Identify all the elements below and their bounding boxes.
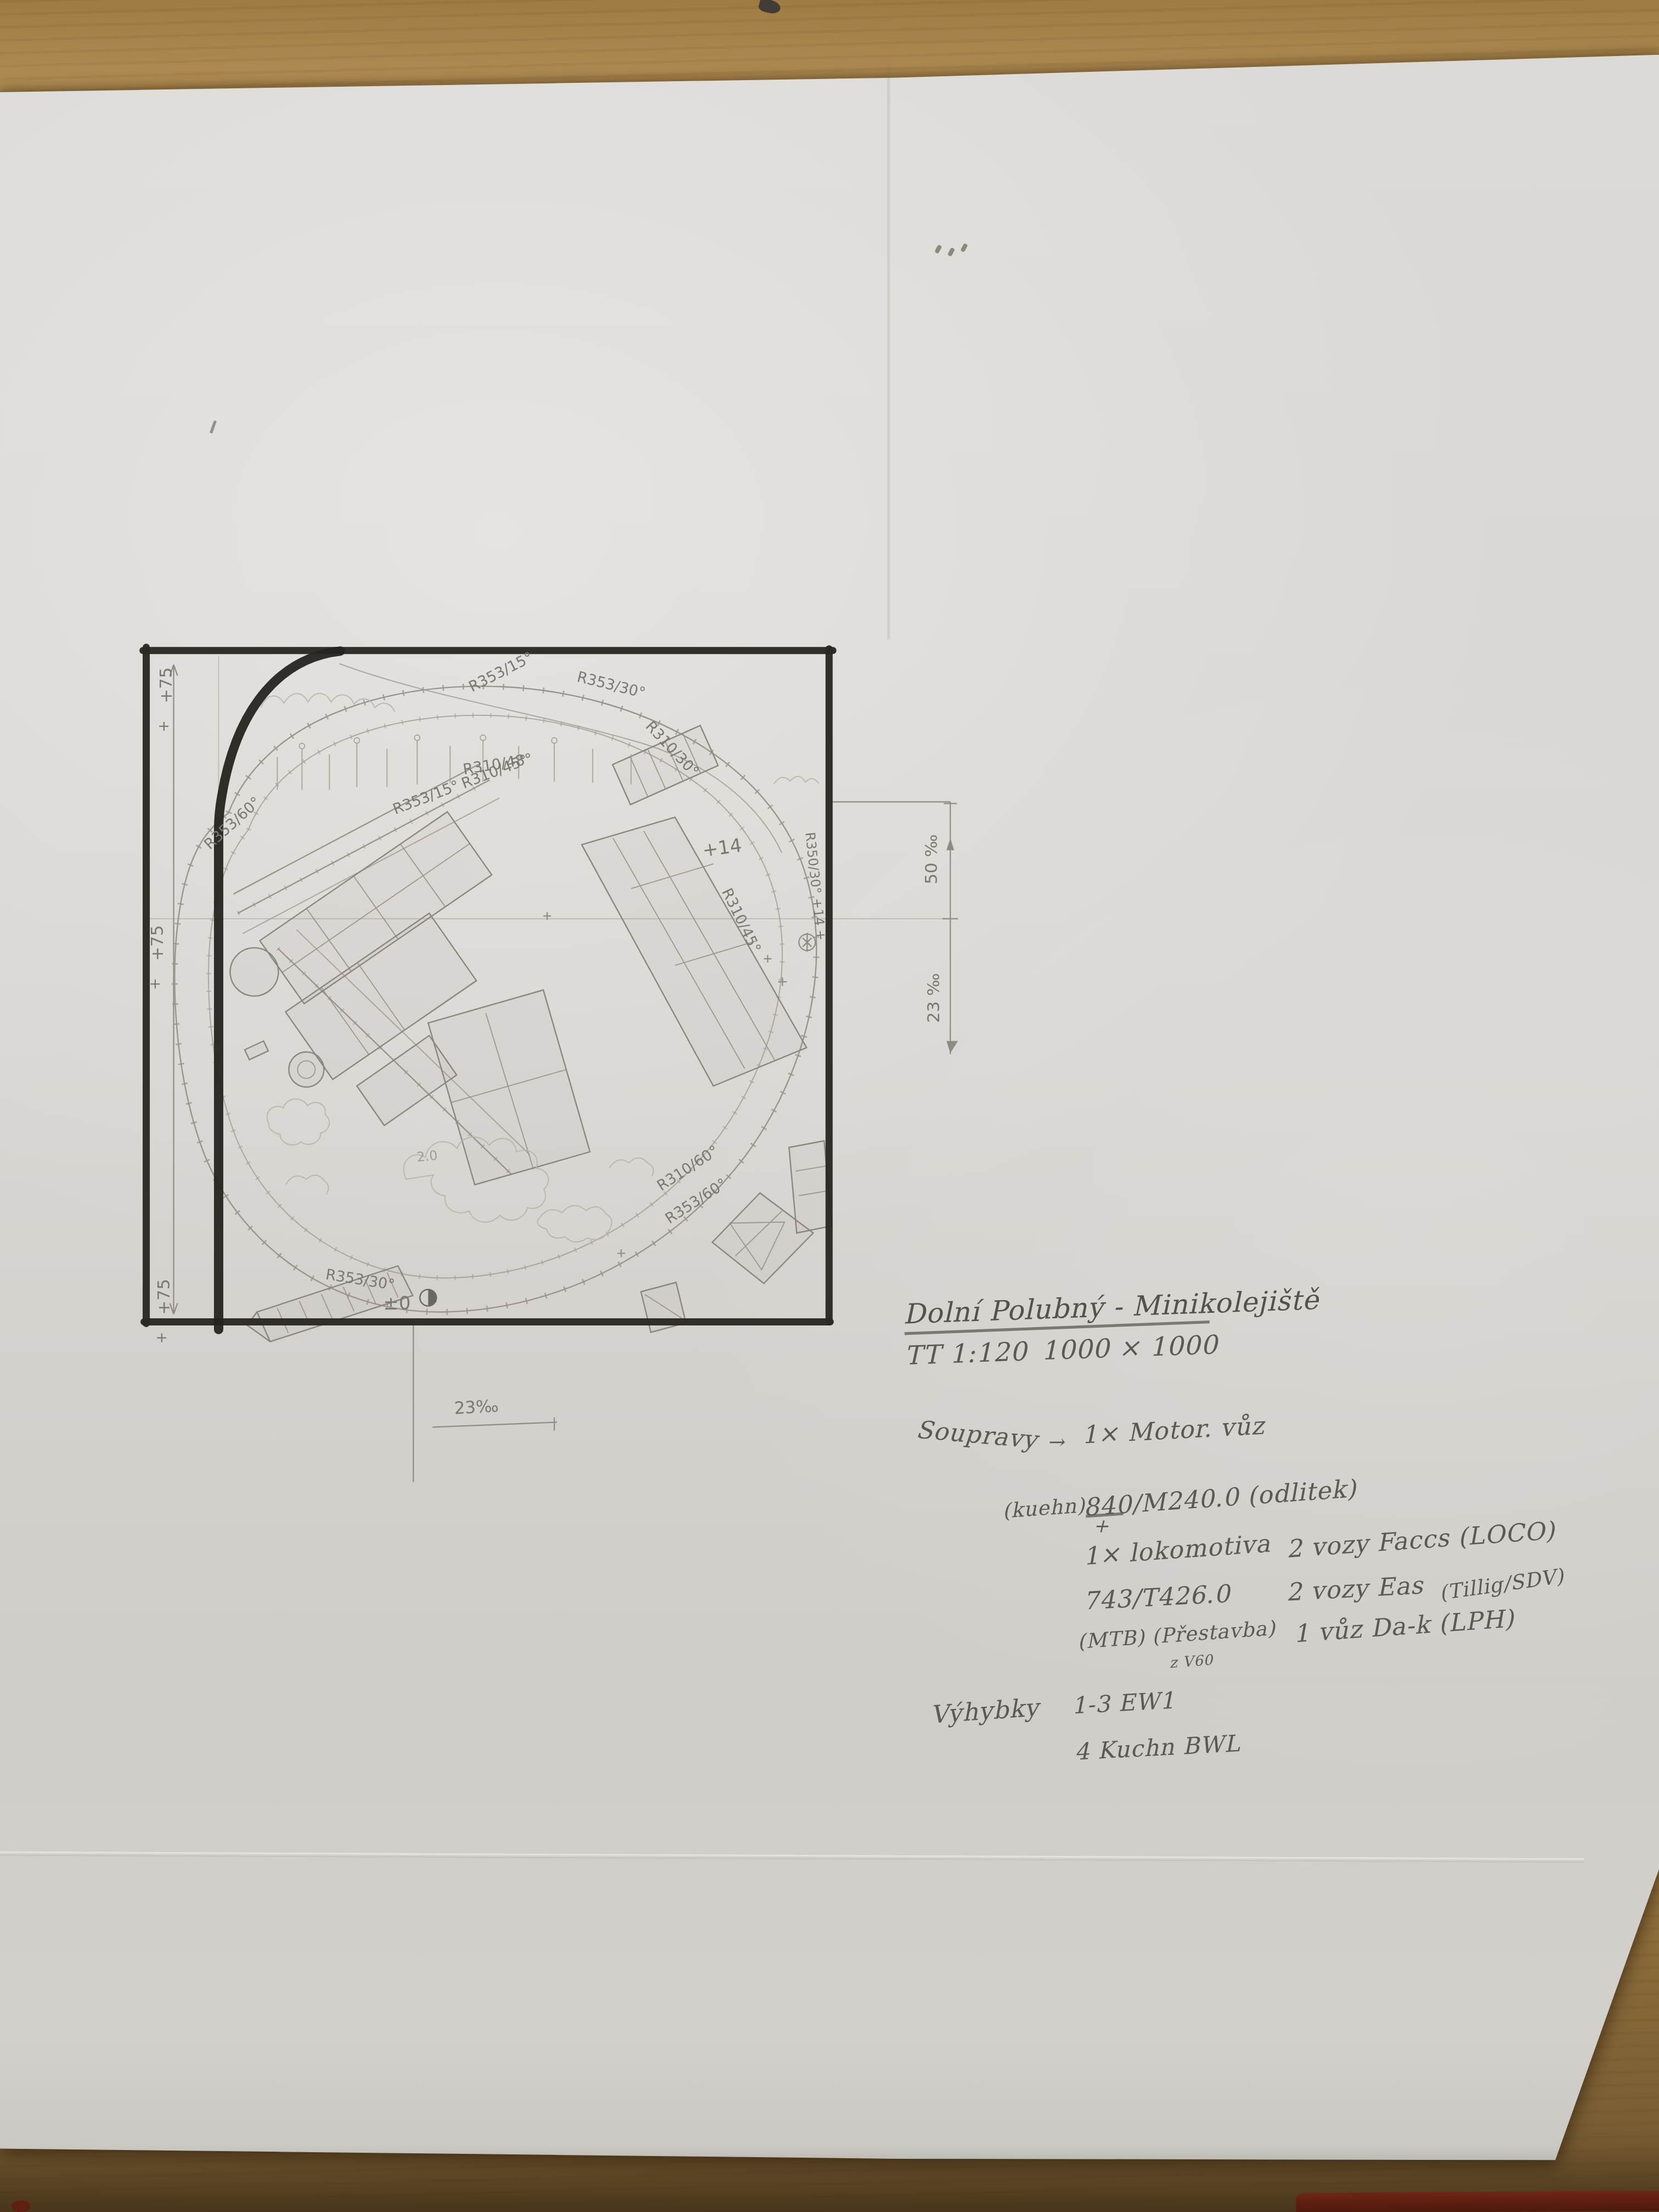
gradient-label-upper: 50 ‰ [921, 834, 941, 884]
table-edge-shadow [0, 2146, 1659, 2212]
paper-crease-vertical [887, 64, 890, 640]
radius-label: R353/30° [575, 668, 647, 701]
elevation-label: +75 [156, 667, 176, 703]
plus-glyph: + [1093, 1515, 1109, 1537]
elevation-label: +75 [154, 1279, 173, 1314]
datum-label: ±0 [383, 1292, 410, 1314]
benchmark-icon [420, 1289, 436, 1306]
photo-scene: R353/15° R353/30° R310/30° R310/48° R353… [0, 0, 1659, 2212]
arrow-glyph: → [1047, 1430, 1064, 1453]
pencil-note: 2.0 [416, 1148, 438, 1165]
dimensions-label: 1000 × 1000 [1041, 1329, 1218, 1365]
set2-note-small: z V60 [1169, 1652, 1214, 1671]
plus-mark: + [153, 1332, 170, 1344]
turnouts1-label: 1-3 EW1 [1071, 1686, 1176, 1719]
building-center-lower [428, 990, 590, 1185]
plus-mark: + [155, 720, 172, 732]
track-plan-drawing: R353/15° R353/30° R310/30° R310/48° R353… [121, 631, 983, 1520]
plus-mark: + [146, 978, 163, 990]
elevation-point-label: +14 [701, 834, 743, 861]
turntable [230, 948, 279, 996]
radius-label: R353/60° [201, 793, 264, 853]
elevation-label: +75 [147, 925, 167, 961]
building-right-hall [582, 817, 806, 1086]
gradient-label-bottom: 23‰ [454, 1396, 499, 1418]
scale-label: TT 1:120 [904, 1336, 1028, 1370]
gradient-label-lower: 23 ‰ [923, 973, 943, 1023]
radius-label: R350/30° +14 + [802, 831, 829, 941]
